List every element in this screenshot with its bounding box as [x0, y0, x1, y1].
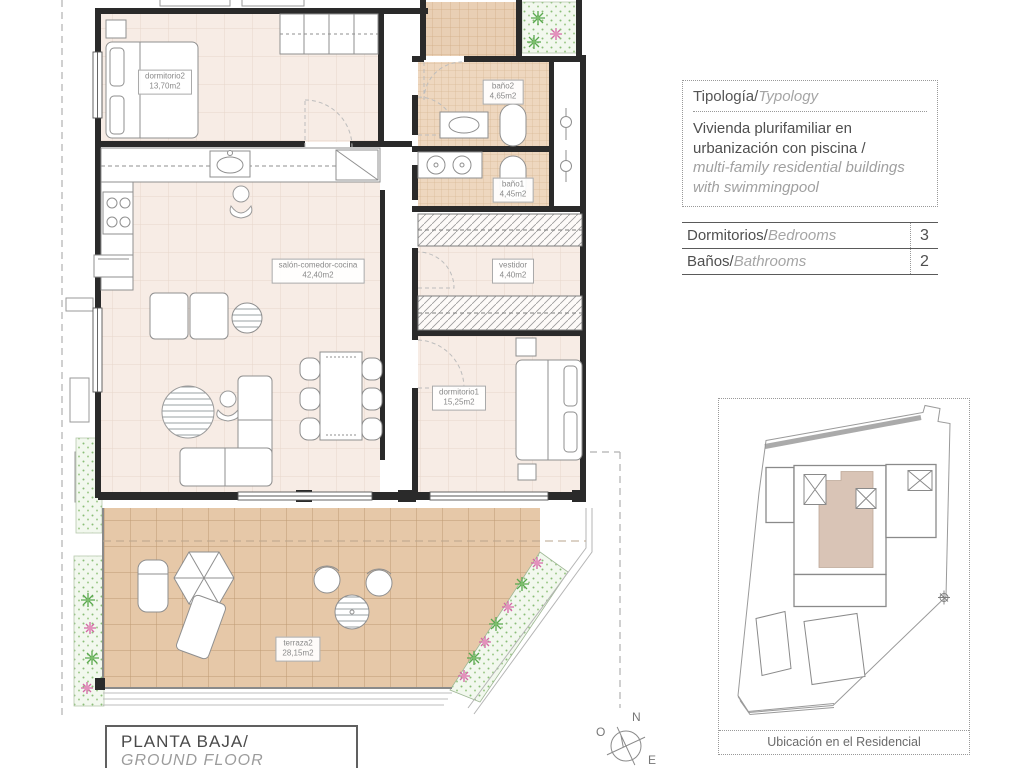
room-name: terraza2	[282, 639, 313, 649]
compass-icon: N O E	[592, 704, 676, 768]
room-name: baño2	[490, 82, 517, 92]
plan-title-es: PLANTA BAJA/	[121, 732, 356, 752]
room-name: dormitorio1	[439, 388, 479, 398]
room-name: salón-comedor-cocina	[279, 261, 358, 271]
room-name: dormitorio2	[145, 72, 185, 82]
typology-title-en: Typology	[758, 88, 818, 105]
room-area: 4,65m2	[490, 92, 517, 102]
room-label-bano1: baño1 4,45m2	[493, 178, 534, 203]
plan-title-en: GROUND FLOOR	[121, 752, 356, 768]
typology-body-es: Vivienda plurifamiliar en urbanización c…	[693, 119, 927, 158]
room-area: 42,40m2	[279, 271, 358, 281]
floor-plan-page: dormitorio2 13,70m2 baño2 4,65m2 baño1 4…	[0, 0, 1024, 768]
top-cutoff-shapes	[160, 0, 304, 6]
entry-patio-floor	[424, 2, 518, 56]
typology-title: Tipología/Typology	[693, 88, 927, 112]
stats-label: Dormitorios/Bedrooms	[682, 227, 910, 244]
compass-e: E	[648, 753, 656, 767]
room-area: 28,15m2	[282, 649, 313, 659]
stats-value-bathrooms: 2	[910, 249, 938, 274]
room-label-vestidor: vestidor 4,40m2	[492, 259, 534, 284]
stats-label: Baños/Bathrooms	[682, 253, 910, 270]
rug-icon	[162, 386, 214, 438]
stats-label-es: Baños/	[687, 253, 734, 270]
room-label-dormitorio1: dormitorio1 15,25m2	[432, 386, 486, 411]
sitemap-panel: Ubicación en el Residencial	[718, 398, 970, 755]
room-label-bano2: baño2 4,65m2	[483, 80, 524, 105]
typology-body-en: multi-family residential buildings with …	[693, 158, 927, 197]
stats-table: Dormitorios/Bedrooms 3 Baños/Bathrooms 2	[682, 222, 938, 275]
room-label-terraza2: terraza2 28,15m2	[275, 637, 320, 662]
room-label-dormitorio2: dormitorio2 13,70m2	[138, 70, 192, 95]
sitemap-drawing	[719, 399, 969, 730]
stats-row-bathrooms: Baños/Bathrooms 2	[682, 249, 938, 275]
room-name: baño1	[500, 180, 527, 190]
room-area: 4,40m2	[499, 271, 527, 281]
typology-title-es: Tipología/	[693, 88, 758, 105]
compass: N O E	[592, 704, 676, 768]
stats-label-es: Dormitorios/	[687, 227, 768, 244]
dining-table-icon	[300, 352, 382, 440]
stats-label-en: Bedrooms	[768, 227, 836, 244]
sitemap-caption: Ubicación en el Residencial	[719, 730, 969, 754]
room-area: 15,25m2	[439, 398, 479, 408]
room-label-salon: salón-comedor-cocina 42,40m2	[272, 259, 365, 284]
wardrobe2-icon	[280, 14, 378, 54]
room-name: vestidor	[499, 261, 527, 271]
plan-title-box: PLANTA BAJA/ GROUND FLOOR	[105, 725, 358, 768]
compass-n: N	[632, 710, 641, 724]
compass-o: O	[596, 725, 605, 739]
stats-label-en: Bathrooms	[734, 253, 807, 270]
room-area: 4,45m2	[500, 190, 527, 200]
sitemap-highlight-unit	[819, 472, 873, 568]
room-area: 13,70m2	[145, 82, 185, 92]
typology-panel: Tipología/Typology Vivienda plurifamilia…	[682, 80, 938, 207]
stats-row-bedrooms: Dormitorios/Bedrooms 3	[682, 223, 938, 249]
stats-value-bedrooms: 3	[910, 223, 938, 248]
